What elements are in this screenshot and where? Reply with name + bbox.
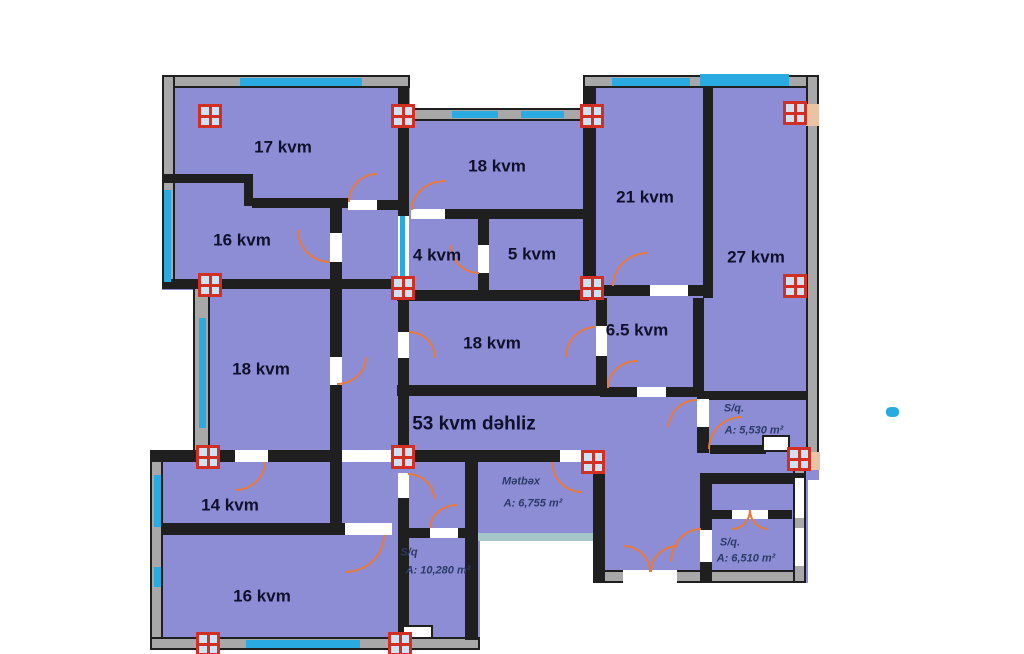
room-label: 18 kvm [463,335,521,352]
room-area-label: A: 5,530 m² [725,426,784,437]
wall [697,427,709,453]
wall [700,562,712,583]
column-marker [196,632,220,654]
window [521,111,564,118]
door-opening [650,285,688,296]
room-label: 17 kvm [254,139,312,156]
window [452,111,498,118]
wall [465,450,478,640]
column-marker [581,450,605,474]
door-opening [235,450,268,462]
column-marker [391,445,415,469]
wall [398,296,409,332]
column-marker [787,447,811,471]
outer-wall [806,75,819,465]
room-area-label: A: 6,510 m² [717,554,776,565]
column-marker [196,445,220,469]
wall [377,200,398,210]
wall [596,285,650,296]
wall [163,174,251,183]
wall [445,209,583,219]
wall [693,298,704,393]
door-opening [560,450,582,462]
window [612,78,690,86]
wall [600,387,637,397]
door-opening [697,399,709,427]
column-marker [783,274,807,298]
window [164,190,171,282]
column-marker [198,104,222,128]
window [700,74,789,86]
void-area [162,290,193,450]
wall [330,460,342,525]
door-opening [411,209,445,219]
room-label: Mətbəx [502,477,540,488]
room-label: 18 kvm [232,361,290,378]
window [154,475,161,527]
wall [697,391,806,400]
column-pad [806,104,819,126]
wall [712,510,732,519]
column-marker [391,104,415,128]
room-label: 4 kvm [413,247,461,264]
room-label: 16 kvm [233,588,291,605]
room-label: 16 kvm [213,232,271,249]
room-label: 5 kvm [508,246,556,263]
door-opening [637,387,666,397]
column-marker [391,276,415,300]
room-label: 6.5 kvm [606,322,668,339]
room-label: 53 kvm dəhliz [412,415,536,434]
wall [397,385,602,396]
wall [397,290,589,301]
wall [478,215,489,245]
room-label: S/q [400,548,417,559]
column-marker [388,632,412,654]
room-area-label: A: 10,280 m² [406,566,471,577]
wall [700,473,806,484]
room-label: S/q. [724,404,744,415]
wall [688,285,704,296]
window [240,78,362,86]
column-marker [783,101,807,125]
window [154,567,161,587]
floor-plan: 17 kvm16 kvm18 kvm21 kvm27 kvm4 kvm5 kvm… [0,0,1024,654]
wall [408,528,430,538]
door-opening [345,523,392,535]
door-opening [398,332,409,358]
wall-notch [762,435,790,452]
door-opening [700,530,712,562]
outer-wall [398,108,600,121]
room-label: S/q. [720,538,740,549]
door-opening [478,245,489,273]
room-label: 14 kvm [201,497,259,514]
column-marker [580,104,604,128]
column-marker [580,276,604,300]
wall [330,385,342,460]
room-label: 18 kvm [468,158,526,175]
window [246,640,360,648]
balcony-edge [478,533,596,541]
stray-mark [886,407,899,417]
wall [458,528,470,538]
door-opening [330,233,342,262]
column-marker [198,273,222,297]
wall [330,285,342,357]
door-opening [342,450,398,462]
room-label: 21 kvm [616,189,674,206]
door-opening [795,478,804,518]
wall [163,523,345,535]
room-area-label: A: 6,755 m² [504,499,563,510]
wall [330,207,342,233]
room-label: 27 kvm [727,249,785,266]
window [199,318,206,428]
wall [768,510,792,519]
door-opening [430,528,458,538]
wall [700,484,712,530]
wall [703,88,713,298]
door-opening [795,528,804,566]
